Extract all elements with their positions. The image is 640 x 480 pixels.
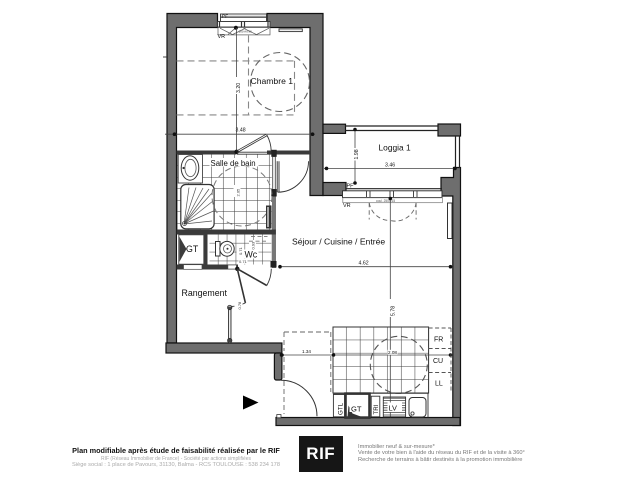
svg-text:VR: VR bbox=[343, 203, 351, 209]
svg-text:Séjour / Cuisine / Entrée: Séjour / Cuisine / Entrée bbox=[292, 237, 385, 247]
svg-text:Salle de bain: Salle de bain bbox=[211, 159, 256, 168]
svg-text:Rangement: Rangement bbox=[182, 288, 228, 298]
svg-text:Chambre 1: Chambre 1 bbox=[251, 76, 294, 86]
svg-text:1.98: 1.98 bbox=[354, 149, 360, 159]
svg-text:0.71: 0.71 bbox=[238, 246, 243, 255]
svg-text:0.78: 0.78 bbox=[237, 301, 242, 310]
svg-text:PF: PF bbox=[222, 13, 228, 19]
svg-text:GTL: GTL bbox=[338, 402, 345, 415]
svg-text:GT: GT bbox=[351, 405, 362, 414]
svg-text:TRI: TRI bbox=[373, 404, 380, 414]
svg-text:VR: VR bbox=[218, 34, 226, 40]
svg-text:Loggia 1: Loggia 1 bbox=[379, 143, 411, 153]
svg-text:Wc: Wc bbox=[245, 249, 258, 259]
svg-text:4.62: 4.62 bbox=[359, 260, 369, 266]
svg-text:3.20: 3.20 bbox=[236, 83, 242, 93]
svg-text:L.160 All.90: L.160 All.90 bbox=[236, 29, 252, 33]
svg-text:LL: LL bbox=[435, 381, 443, 388]
svg-text:GT: GT bbox=[186, 244, 199, 254]
svg-text:CU: CU bbox=[433, 358, 443, 365]
svg-text:0.93: 0.93 bbox=[251, 241, 256, 250]
svg-text:FR: FR bbox=[434, 337, 443, 344]
svg-text:LV: LV bbox=[389, 404, 398, 413]
svg-text:1.34: 1.34 bbox=[302, 349, 311, 354]
svg-text:3.48: 3.48 bbox=[236, 128, 246, 134]
svg-text:5.78: 5.78 bbox=[391, 306, 397, 316]
svg-text:0.71: 0.71 bbox=[239, 259, 248, 264]
svg-text:2.08: 2.08 bbox=[388, 350, 397, 355]
svg-text:coul. 250/215: coul. 250/215 bbox=[376, 199, 395, 203]
svg-text:2.05: 2.05 bbox=[236, 188, 241, 197]
svg-text:3.46: 3.46 bbox=[385, 162, 395, 168]
